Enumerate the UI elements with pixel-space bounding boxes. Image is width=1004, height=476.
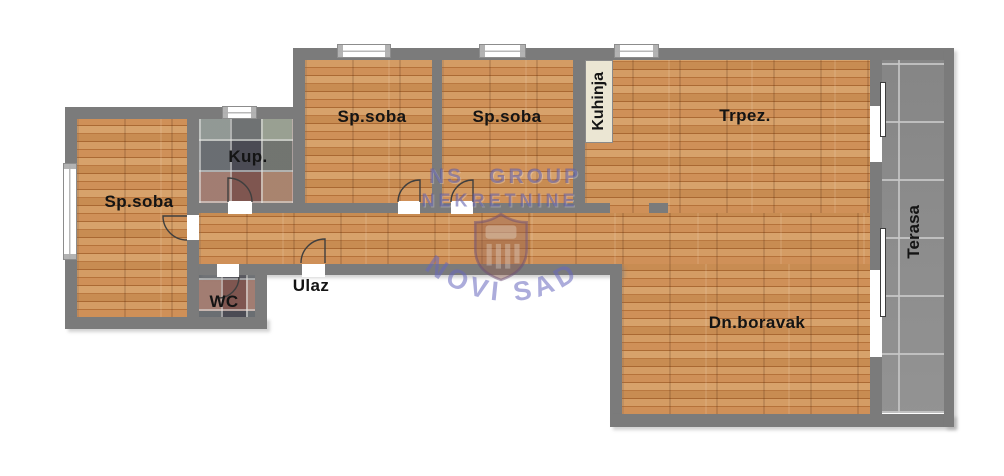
floor-dining-kitchen <box>585 60 870 213</box>
label-wc: WC <box>209 292 238 312</box>
label-bedroom-left: Sp.soba <box>105 192 174 212</box>
label-terrace-box: Terasa <box>904 200 924 264</box>
door-opening-bedroom-b <box>451 201 473 214</box>
wall-stub-kitchen <box>649 203 668 213</box>
floor-bedroom-a <box>305 60 432 203</box>
wall-left-section-top <box>65 107 305 119</box>
wall-right-outer <box>944 48 954 427</box>
window-leaf-living-terrace <box>880 228 886 317</box>
wall-left-section-bottom <box>65 317 267 329</box>
label-kitchen: Kuhinja <box>590 72 608 131</box>
wall-mid-left-vertical <box>293 48 305 213</box>
window-bedroom-left <box>63 163 77 260</box>
door-opening-wc <box>217 264 239 277</box>
window-kitchen <box>614 44 659 58</box>
wall-bottom-right <box>610 414 954 427</box>
wall-bedroom-divider <box>432 48 442 213</box>
floor-hallway <box>199 213 870 264</box>
label-terrace: Terasa <box>904 205 924 259</box>
label-living: Dn.boravak <box>709 313 806 333</box>
floor-bedroom-left <box>77 119 187 317</box>
floorplan: Sp.soba Kup. WC Ulaz Sp.soba Sp.soba Trp… <box>0 0 1004 476</box>
door-opening-bedroom-left <box>187 215 199 240</box>
floor-living <box>622 264 870 414</box>
floor-bedroom-b <box>442 60 573 203</box>
label-kitchen-plate: Kuhinja <box>585 60 613 143</box>
wall-wc-right <box>255 264 267 329</box>
label-bedroom-b: Sp.soba <box>473 107 542 127</box>
label-bathroom: Kup. <box>228 147 267 167</box>
label-entry: Ulaz <box>293 276 330 296</box>
label-bedroom-a: Sp.soba <box>338 107 407 127</box>
label-dining: Trpez. <box>719 106 771 126</box>
window-leaf-dining-terrace <box>880 82 886 137</box>
door-opening-bedroom-a <box>398 201 420 214</box>
wall-living-left <box>610 264 622 416</box>
wall-kitchen-left <box>573 48 585 213</box>
window-bathroom <box>222 106 257 119</box>
window-bedroom-b <box>479 44 526 58</box>
window-bedroom-a <box>337 44 391 58</box>
door-opening-bathroom <box>228 201 252 214</box>
